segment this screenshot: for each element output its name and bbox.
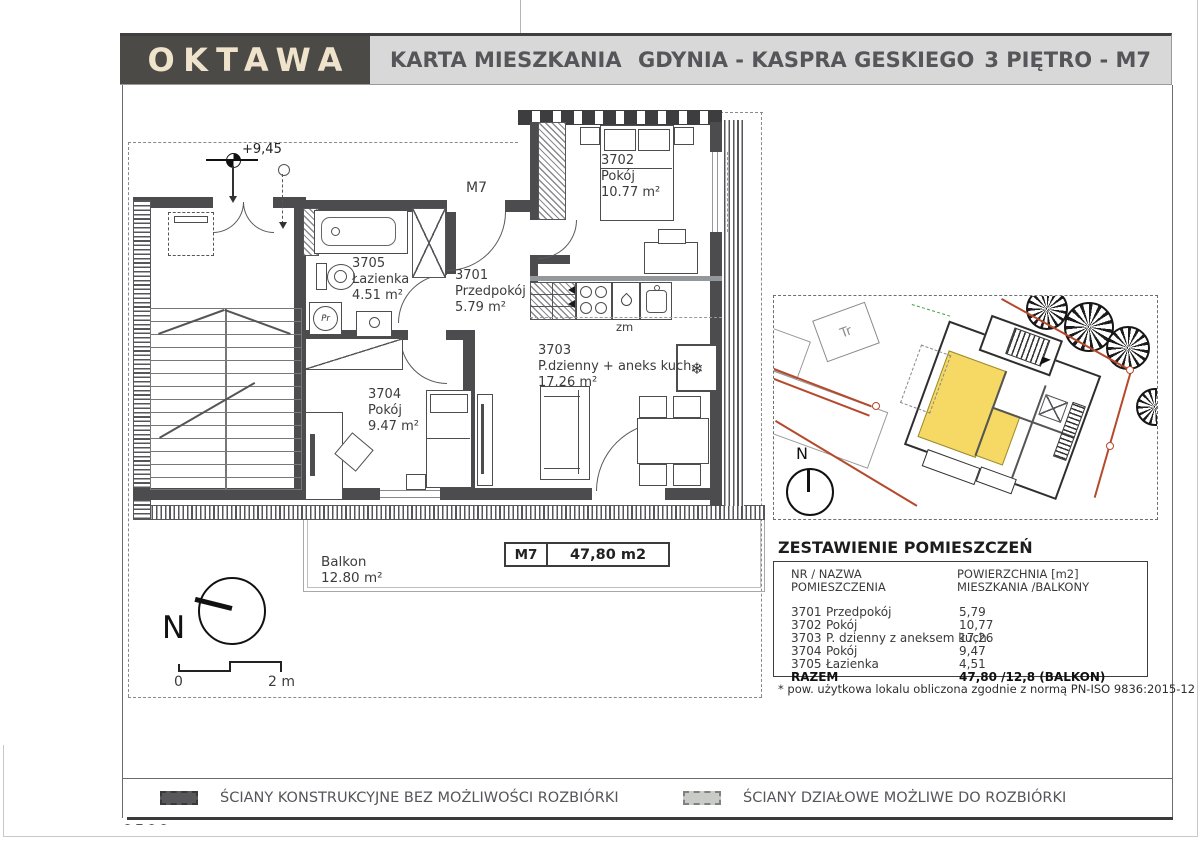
plan-dashed-border-top-left	[128, 142, 518, 143]
dishwasher-droplet-icon	[619, 293, 635, 309]
room-label-3702: 3702 Pokój 10.77 m²	[601, 153, 660, 201]
kitchen-counter-front-dashed	[530, 317, 722, 318]
plan-unit-label: M7	[466, 180, 487, 197]
floor-unit-title: 3 PIĘTRO - M7	[984, 48, 1151, 72]
kitchen-arrow-1	[568, 286, 575, 294]
row1-value: 5,79	[959, 605, 986, 619]
room-label-3701: 3701 Przedpokój 5.79 m²	[455, 268, 526, 316]
row2-name: Pokój	[826, 618, 857, 632]
room-3704-door-arc	[400, 337, 447, 384]
content-border-right	[1172, 85, 1173, 818]
row1-nr: 3701	[791, 605, 822, 619]
legend-top-line	[122, 778, 1173, 779]
row5-name: Łazienka	[826, 657, 879, 671]
room-3701-area: 5.79 m²	[455, 300, 526, 316]
wall-3702-left-upper	[530, 122, 538, 220]
sofa-back-line	[578, 390, 579, 474]
row2-value: 10,77	[959, 618, 993, 632]
legend-label-structural: ŚCIANY KONSTRUKCYJNE BEZ MOŻLIWOŚCI ROZB…	[220, 790, 619, 806]
bed-3702-pillow-left	[604, 129, 636, 151]
boundary-point-1	[872, 402, 880, 410]
level-marker-crossline	[206, 159, 258, 161]
room-table-box: NR / NAZWA POMIESZCZENIA POWIERZCHNIA [m…	[773, 561, 1148, 677]
stove-burner-4	[595, 302, 607, 314]
north-label: N	[162, 610, 185, 646]
legend-swatch-structural	[160, 791, 198, 805]
room-3702-area: 10.77 m²	[601, 185, 660, 201]
table-col1-header-line2: POMIESZCZENIA	[791, 580, 886, 594]
bed-3702-pillow-right	[638, 129, 670, 151]
unit-area-box-value: 47,80 m2	[548, 544, 668, 565]
row2-nr: 3702	[791, 618, 822, 632]
desk-3702	[644, 242, 698, 274]
dining-chair-1	[639, 396, 667, 418]
unit-area-box: M7 47,80 m2	[504, 542, 670, 567]
room-label-3703: 3703 P.dzienny + aneks kuch. 17.26 m²	[538, 343, 696, 391]
dining-chair-3	[639, 464, 667, 486]
level-marker-leader	[232, 166, 234, 198]
window-east-glass-line1	[712, 152, 713, 232]
dishwasher-label: zm	[616, 320, 633, 334]
wall-hall-top-b	[505, 200, 530, 212]
wall-bath-bottom-b	[446, 330, 475, 340]
stove-burner-3	[580, 302, 592, 314]
site-compass-needle	[807, 470, 810, 492]
room-3703-number: 3703	[538, 343, 696, 359]
north-compass	[198, 577, 266, 645]
table-col2-header-line2: MIESZKANIA /BALKONY	[957, 580, 1089, 594]
dining-chair-2	[673, 396, 701, 418]
room-3702-door-arc	[538, 220, 577, 259]
row5-nr: 3705	[791, 657, 822, 671]
staircase-cut-line	[159, 382, 255, 438]
tv-board	[477, 394, 493, 486]
toilet-bowl-inner	[334, 270, 347, 283]
scale-bar	[178, 661, 282, 673]
kitchen-counter-back	[530, 276, 722, 281]
top-center-line	[520, 0, 521, 33]
page-border-left	[3, 745, 4, 837]
window-east-balustrade	[727, 152, 728, 232]
scale-bar-tick-right	[280, 661, 282, 672]
apartment-card-page: OKTAWA KARTA MIESZKANIA GDYNIA - KASPRA …	[0, 0, 1200, 848]
transformer-box: Tr	[812, 302, 880, 362]
balcony-label: Balkon 12.80 m²	[321, 554, 383, 587]
window-south-3704	[380, 490, 440, 498]
bathtub-drain	[331, 227, 340, 236]
level-marker-symbol	[226, 153, 241, 168]
nightstand-right	[674, 127, 694, 145]
neighbor-door-arc-left	[213, 202, 244, 233]
dining-chair-4	[673, 464, 701, 486]
legend-item-structural: ŚCIANY KONSTRUKCYJNE BEZ MOŻLIWOŚCI ROZB…	[160, 790, 619, 806]
content-border-left	[122, 85, 123, 818]
wall-south-d	[665, 488, 722, 500]
washer-circle: Pr	[313, 306, 338, 331]
room-table-footnote: * pow. użytkowa lokalu obliczona zgodnie…	[778, 682, 1195, 696]
document-title: KARTA MIESZKANIA	[390, 48, 622, 72]
room-3701-name: Przedpokój	[455, 284, 526, 300]
balcony-area: 12.80 m²	[321, 570, 383, 586]
dishwasher	[612, 282, 640, 320]
tree-3	[1106, 326, 1150, 370]
nightstand-left	[580, 127, 600, 145]
row1-name: Przedpokój	[826, 605, 891, 619]
plan-dashed-border-top-right	[720, 112, 763, 113]
bed-3704-rug	[406, 474, 426, 490]
washbasin-drain	[369, 317, 380, 328]
wall-west-external-hatch	[133, 200, 151, 520]
row4-value: 9,47	[959, 644, 986, 658]
site-compass	[786, 468, 834, 516]
kitchen-sink	[640, 282, 672, 320]
room-label-3705: 3705 Łazienka 4.51 m²	[352, 256, 409, 304]
logo-box: OKTAWA	[120, 36, 370, 84]
balcony-railing-hatch	[133, 505, 765, 520]
dining-table	[637, 418, 709, 464]
bottom-rule	[127, 817, 1173, 820]
room-3701-number: 3701	[455, 268, 526, 284]
room-label-3704: 3704 Pokój 9.47 m²	[368, 387, 419, 435]
kitchen-cabinet-divider-v	[552, 283, 553, 319]
tree-4	[1136, 388, 1158, 426]
transformer-label: Tr	[838, 323, 854, 341]
site-plan: Tr	[773, 295, 1158, 520]
survey-point-leader	[282, 174, 283, 224]
room-3705-name: Łazienka	[352, 272, 409, 288]
investment-title: GDYNIA - KASPRA GESKIEGO	[638, 48, 974, 72]
room-3705-number: 3705	[352, 256, 409, 272]
scale-bar-tick-left	[178, 664, 180, 672]
scale-bar-high	[229, 661, 281, 663]
scale-zero-label: 0	[174, 674, 183, 691]
legend-swatch-partition	[683, 791, 721, 805]
bed-3704-blanket-line	[426, 438, 470, 439]
scale-end-label: 2 m	[268, 674, 295, 691]
page-border-right	[1197, 0, 1198, 837]
elevator-car	[174, 216, 208, 223]
sofa	[540, 386, 590, 480]
plan-dashed-border-right	[761, 112, 762, 697]
room-3702-name: Pokój	[601, 169, 660, 185]
survey-point-arrow	[279, 222, 287, 229]
survey-point-circle	[278, 164, 290, 176]
boundary-point-3	[1106, 442, 1114, 450]
kitchen-sink-basin	[646, 290, 667, 313]
plan-dashed-border-left	[128, 142, 129, 697]
room-3702-number: 3702	[601, 153, 660, 169]
row3-nr: 3703	[791, 631, 822, 645]
legend-label-partition: ŚCIANY DZIAŁOWE MOŻLIWE DO ROZBIÓRKI	[743, 790, 1066, 806]
page-border-bottom	[3, 836, 1197, 837]
unit-area-box-id: M7	[506, 544, 548, 565]
sofa-armrest-top	[544, 396, 580, 397]
stove-burner-1	[580, 286, 592, 298]
window-east-glass-line2	[717, 152, 718, 232]
neighbor-door-arc-right	[243, 202, 274, 233]
site-north-label: N	[796, 444, 808, 463]
room-3705-area: 4.51 m²	[352, 288, 409, 304]
tv-screen	[481, 404, 484, 474]
scale-bar-low	[178, 670, 230, 672]
ventilation-shaft	[412, 208, 446, 278]
header-bar: OKTAWA KARTA MIESZKANIA GDYNIA - KASPRA …	[120, 33, 1172, 85]
room-3704-area: 9.47 m²	[368, 419, 419, 435]
room-3704-number: 3704	[368, 387, 419, 403]
kitchen-arrow-2	[568, 300, 575, 308]
stove-burner-2	[595, 286, 607, 298]
row5-value: 4,51	[959, 657, 986, 671]
bed-3704-pillow	[430, 394, 468, 413]
clipped-footer-text: 0500	[123, 819, 185, 825]
table-col2-header-line1: POWIERZCHNIA [m2]	[957, 567, 1079, 581]
row4-nr: 3704	[791, 644, 822, 658]
legend-item-partition: ŚCIANY DZIAŁOWE MOŻLIWE DO ROZBIÓRKI	[683, 790, 1066, 806]
boundary-point-2	[1126, 366, 1134, 374]
wardrobe-3704	[305, 338, 403, 370]
balcony-name: Balkon	[321, 554, 383, 570]
toilet-tank	[316, 263, 327, 290]
logo-oktawa: OKTAWA	[148, 41, 351, 79]
row3-value: 17,26	[959, 631, 993, 645]
clipped-footer-fragment: 0500	[123, 823, 171, 825]
table-col1-header-line1: NR / NAZWA	[791, 567, 862, 581]
stove	[576, 282, 612, 320]
level-marker-arrow	[229, 196, 237, 203]
room-3703-name: P.dzienny + aneks kuch.	[538, 359, 696, 375]
chair-3702	[658, 229, 686, 244]
header-title-strip: KARTA MIESZKANIA GDYNIA - KASPRA GESKIEG…	[370, 36, 1171, 84]
floor-plan: +9,45 Pr	[128, 108, 768, 708]
plan-dashed-border-bottom	[128, 697, 762, 698]
row4-name: Pokój	[826, 644, 857, 658]
room-3704-name: Pokój	[368, 403, 419, 419]
room-table-title: ZESTAWIENIE POMIESZCZEŃ	[778, 538, 1033, 557]
kitchen-sink-tap	[654, 285, 660, 291]
room-3703-area: 17.26 m²	[538, 375, 696, 391]
entrance-door-arc	[447, 212, 506, 271]
washer-label: Pr	[321, 314, 330, 324]
level-marker-value: +9,45	[242, 142, 282, 158]
wardrobe-3702	[538, 122, 566, 220]
kitchen-cabinet-divider-h1	[531, 294, 575, 295]
desk-3704-monitor	[310, 434, 315, 476]
staircase	[150, 308, 302, 490]
sofa-armrest-bottom	[544, 468, 580, 469]
